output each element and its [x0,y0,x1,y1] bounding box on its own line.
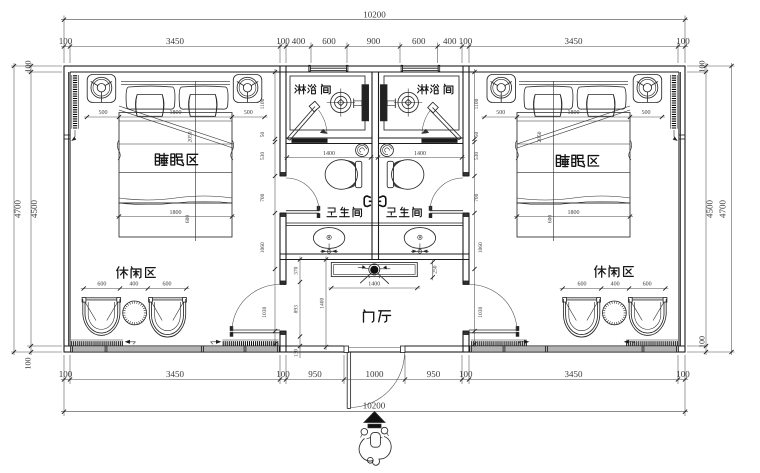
svg-text:10200: 10200 [363,401,386,411]
svg-text:1400: 1400 [368,282,380,288]
svg-text:900: 900 [367,36,381,46]
svg-text:100: 100 [676,36,690,46]
svg-text:100: 100 [459,369,473,379]
svg-text:1100: 1100 [474,98,480,109]
svg-text:530: 530 [474,152,480,161]
svg-text:700: 700 [474,193,480,202]
svg-text:600: 600 [163,282,172,288]
svg-text:3450: 3450 [565,36,584,46]
svg-text:500: 500 [496,110,505,116]
svg-text:370: 370 [294,266,300,275]
svg-text:600: 600 [548,215,554,224]
svg-text:3450: 3450 [166,36,185,46]
svg-text:600: 600 [97,282,106,288]
svg-text:100: 100 [676,369,690,379]
svg-text:600: 600 [185,215,191,224]
svg-text:1060: 1060 [478,242,484,253]
svg-text:1030: 1030 [262,306,268,317]
svg-text:50: 50 [260,132,266,138]
svg-text:4500: 4500 [704,200,714,219]
svg-text:100: 100 [59,36,73,46]
svg-text:100: 100 [59,369,73,379]
svg-text:500: 500 [642,110,651,116]
svg-text:250: 250 [433,265,439,274]
svg-text:100: 100 [698,336,707,348]
svg-text:3450: 3450 [166,369,185,379]
svg-text:4700: 4700 [717,200,727,219]
svg-text:1100: 1100 [260,98,266,109]
svg-text:400: 400 [611,282,620,288]
svg-text:100: 100 [24,358,33,370]
svg-text:530: 530 [260,152,266,161]
svg-text:4700: 4700 [13,200,23,219]
svg-text:600: 600 [577,282,586,288]
svg-text:1060: 1060 [260,242,266,253]
svg-text:1800: 1800 [170,110,182,116]
svg-text:700: 700 [260,193,266,202]
svg-text:130: 130 [294,349,300,358]
svg-text:4500: 4500 [29,200,39,219]
svg-text:100: 100 [276,369,290,379]
svg-text:1800: 1800 [568,110,580,116]
svg-text:100: 100 [24,61,33,73]
svg-text:3450: 3450 [565,369,584,379]
svg-text:100: 100 [276,36,290,46]
svg-text:500: 500 [99,110,108,116]
svg-text:2050: 2050 [537,131,543,142]
svg-text:1000: 1000 [366,369,385,379]
svg-text:600: 600 [643,282,652,288]
svg-text:2050: 2050 [188,131,194,142]
svg-text:400: 400 [129,282,138,288]
svg-text:1400: 1400 [414,151,426,157]
svg-text:50: 50 [474,132,480,138]
svg-text:893: 893 [294,305,300,314]
svg-text:1400: 1400 [320,298,326,309]
svg-text:950: 950 [427,369,441,379]
svg-text:1400: 1400 [323,151,335,157]
svg-text:950: 950 [308,369,322,379]
svg-text:1030: 1030 [478,306,484,317]
svg-text:400: 400 [292,36,306,46]
svg-text:100: 100 [459,36,473,46]
svg-text:500: 500 [244,110,253,116]
svg-text:600: 600 [412,36,426,46]
svg-text:1800: 1800 [170,210,182,216]
svg-text:1800: 1800 [568,210,580,216]
svg-text:10200: 10200 [363,9,386,19]
svg-text:400: 400 [443,36,457,46]
svg-text:100: 100 [698,61,707,73]
svg-text:600: 600 [322,36,336,46]
